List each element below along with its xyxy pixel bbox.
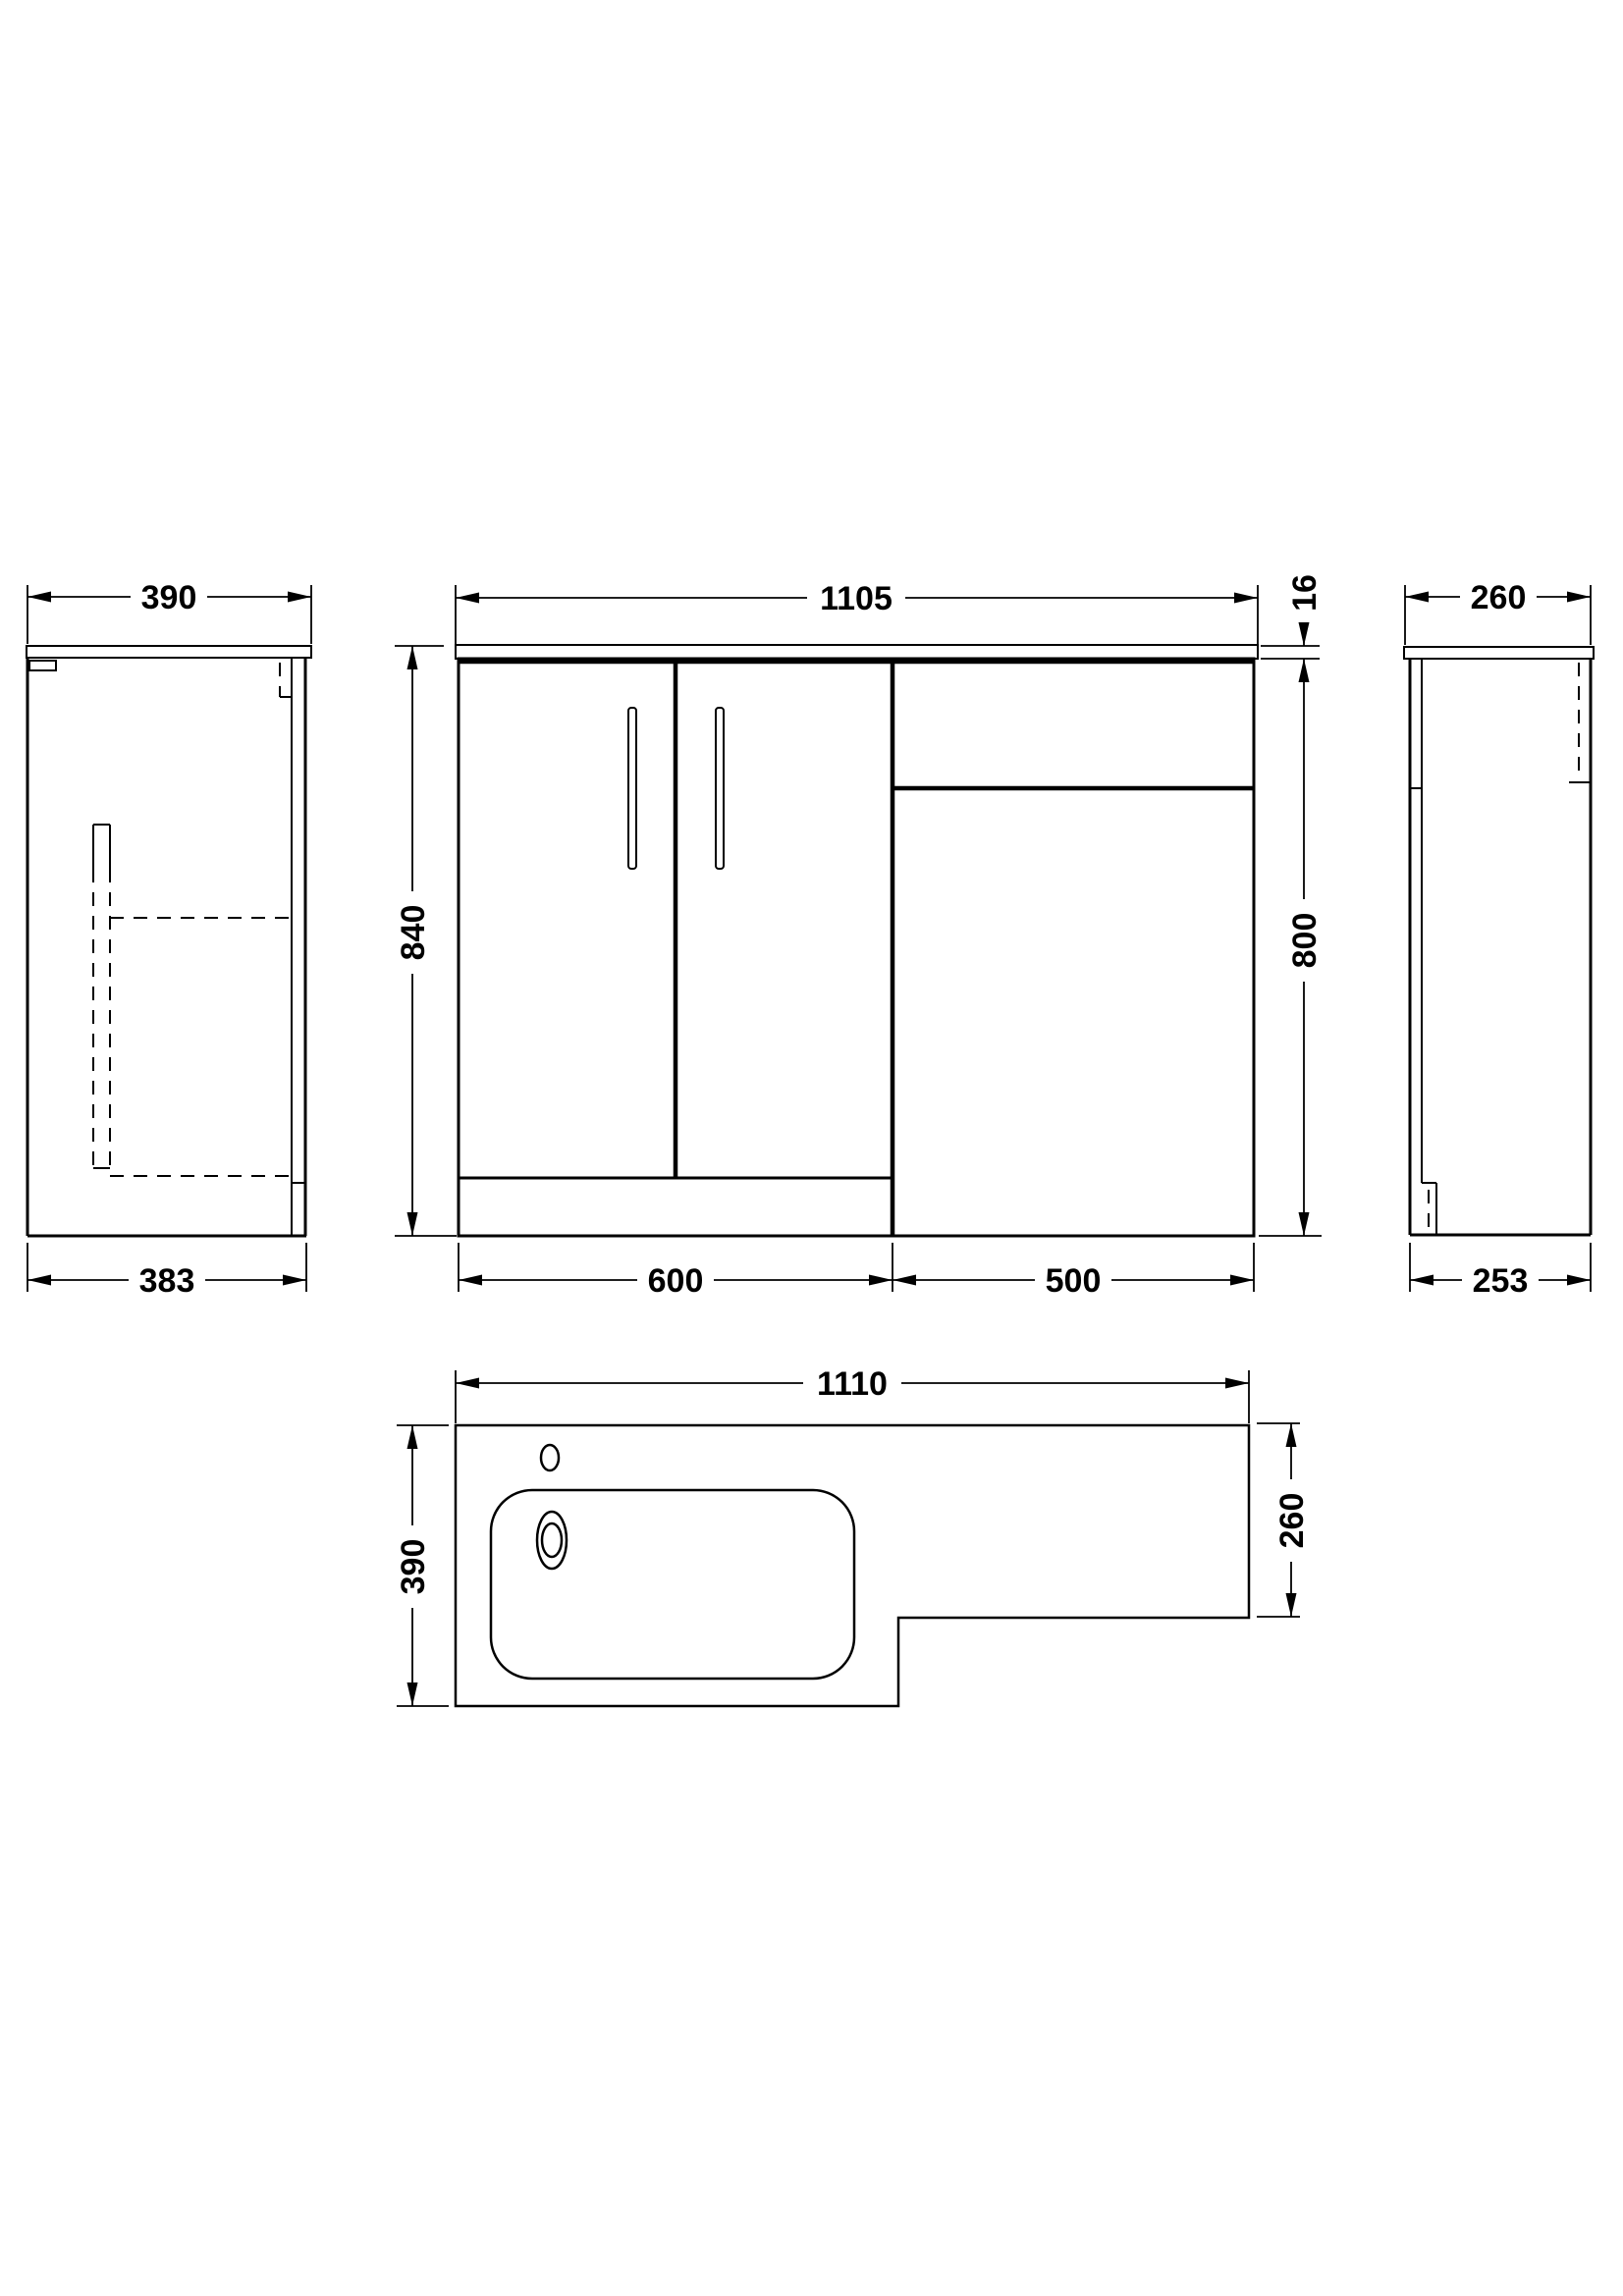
dim-label-390-plan: 390 [395, 1539, 432, 1595]
dim-front-height-cabinet: 800 [1259, 659, 1324, 1236]
dim-plan-width: 1110 [456, 1363, 1249, 1423]
dim-front-counter-thickness: 16 [1261, 565, 1324, 659]
plan-drain [537, 1512, 567, 1569]
dim-label-1105: 1105 [820, 580, 893, 617]
dim-label-1110: 1110 [817, 1365, 888, 1403]
front-cabinet-body [459, 659, 1254, 1236]
side-right-foot [1422, 1183, 1436, 1235]
side-left-bracket [29, 661, 56, 670]
front-view: 1105 840 16 [393, 565, 1324, 1300]
dim-plan-depth-wc: 260 [1257, 1423, 1311, 1617]
plan-worktop-outline [456, 1425, 1249, 1706]
dim-plan-depth-total: 390 [393, 1425, 449, 1706]
dim-front-height-total: 840 [393, 646, 457, 1236]
side-left-countertop [27, 646, 311, 658]
dim-label-390-left: 390 [141, 579, 197, 616]
dim-label-383: 383 [139, 1262, 195, 1300]
dim-label-500: 500 [1046, 1262, 1102, 1300]
drawing-canvas: 390 383 [0, 0, 1623, 2296]
dim-label-260-plan: 260 [1273, 1493, 1311, 1549]
side-view-left: 390 383 [27, 577, 311, 1300]
dim-left-width-bottom: 383 [27, 1243, 306, 1300]
dim-front-width-wc: 500 [893, 1243, 1254, 1300]
side-view-right: 260 253 [1404, 577, 1594, 1300]
dim-left-width-top: 390 [27, 577, 311, 644]
plan-basin-bowl [491, 1490, 854, 1679]
dim-label-600: 600 [648, 1262, 704, 1300]
dim-front-width-top: 1105 [456, 578, 1258, 644]
dim-right-width-bottom: 253 [1410, 1243, 1591, 1300]
front-right-door-handle [716, 708, 724, 869]
front-left-door-handle [628, 708, 636, 869]
dim-label-16: 16 [1286, 574, 1324, 612]
dim-label-800: 800 [1286, 913, 1324, 969]
side-right-countertop [1404, 647, 1594, 659]
side-left-waste-pipe [93, 825, 110, 1168]
dim-front-width-vanity: 600 [459, 1243, 893, 1300]
plan-view: 1110 390 260 [393, 1363, 1311, 1706]
technical-drawing-page: 390 383 [0, 0, 1623, 2296]
front-countertop [456, 645, 1258, 659]
dim-label-260-side: 260 [1471, 579, 1527, 616]
dim-label-253: 253 [1473, 1262, 1529, 1300]
dim-label-840: 840 [395, 905, 432, 961]
dim-right-width-top: 260 [1405, 577, 1591, 645]
plan-tap-hole [541, 1445, 559, 1470]
